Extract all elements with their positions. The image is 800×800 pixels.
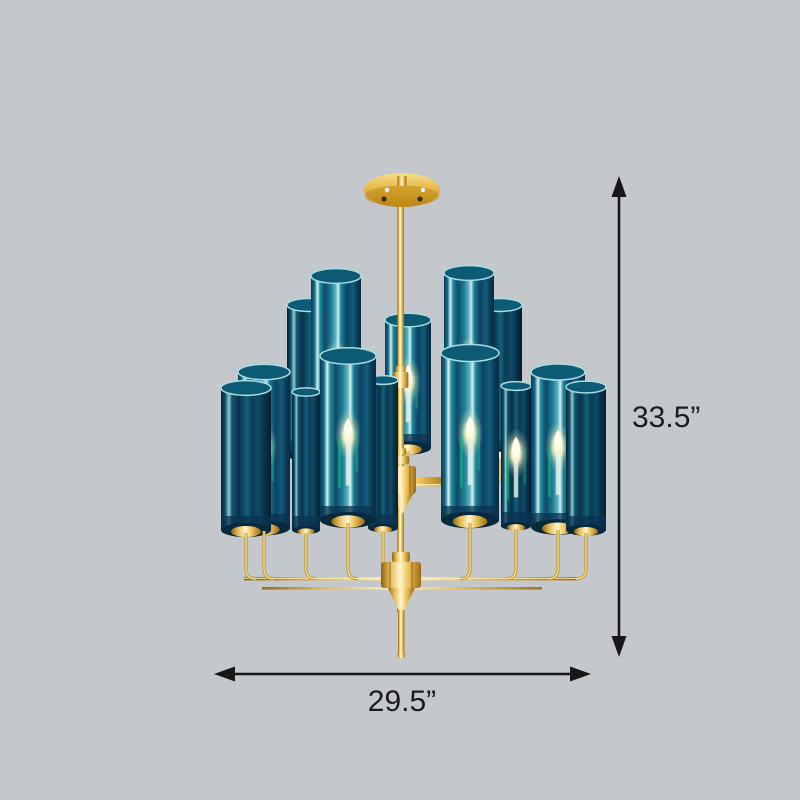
green-reflection <box>524 447 527 483</box>
glass-cylinder <box>501 382 531 531</box>
glass-cylinder <box>566 381 606 536</box>
glass-cylinder <box>441 344 499 528</box>
canopy-screw <box>417 196 422 201</box>
green-reflection <box>338 439 341 488</box>
height-dimension-label: 33.5” <box>632 401 700 434</box>
green-reflection <box>416 375 419 408</box>
lower-hub-groove <box>389 562 391 588</box>
cylinder-opening <box>441 344 499 361</box>
cylinder-opening <box>566 381 606 393</box>
rod-highlight <box>399 203 401 612</box>
cylinder-opening <box>501 382 531 391</box>
cylinder-opening <box>385 313 431 327</box>
green-reflection <box>272 441 275 482</box>
cylinder-opening <box>292 388 320 396</box>
hub-groove <box>409 466 411 494</box>
cylinder-opening <box>311 269 361 284</box>
canopy-underside <box>365 186 439 207</box>
green-reflection <box>460 437 463 487</box>
green-reflection <box>506 457 509 499</box>
candle-stick <box>514 458 518 497</box>
canopy-screw-glint <box>421 188 425 192</box>
bottom-stem-highlight <box>400 610 402 654</box>
lower-hub-block <box>381 562 421 588</box>
width-dimension-label: 29.5” <box>368 685 436 718</box>
green-reflection <box>478 427 481 470</box>
cylinder-opening <box>221 381 271 396</box>
chandelier-product-illustration: 33.5” 29.5” <box>0 0 800 800</box>
stem-tip <box>397 652 405 659</box>
candle-stick <box>556 451 560 494</box>
cylinder-body <box>566 387 606 530</box>
green-reflection <box>548 450 551 497</box>
cylinder-body <box>292 392 320 530</box>
cylinder-body <box>221 388 271 530</box>
cylinder-opening <box>531 364 585 380</box>
lower-hub-collar <box>392 552 410 562</box>
glass-cylinder <box>221 381 271 537</box>
glass-cylinder <box>292 388 320 535</box>
candle-stick <box>346 440 350 486</box>
cylinder-opening <box>320 348 376 364</box>
canopy-screw <box>381 196 386 201</box>
canopy-stem <box>398 176 407 186</box>
cylinder-opening <box>444 266 494 281</box>
rod-collar-small <box>396 366 406 372</box>
glass-cylinder <box>320 348 376 528</box>
candle-stick <box>468 438 472 485</box>
ceiling-canopy <box>364 173 440 207</box>
green-reflection <box>356 429 359 472</box>
product-image: 33.5” 29.5” <box>0 0 800 800</box>
lower-hub-groove <box>411 562 413 588</box>
candle-stick <box>406 386 410 422</box>
cylinder-opening <box>238 364 290 379</box>
canopy-screw-glint <box>385 188 389 192</box>
